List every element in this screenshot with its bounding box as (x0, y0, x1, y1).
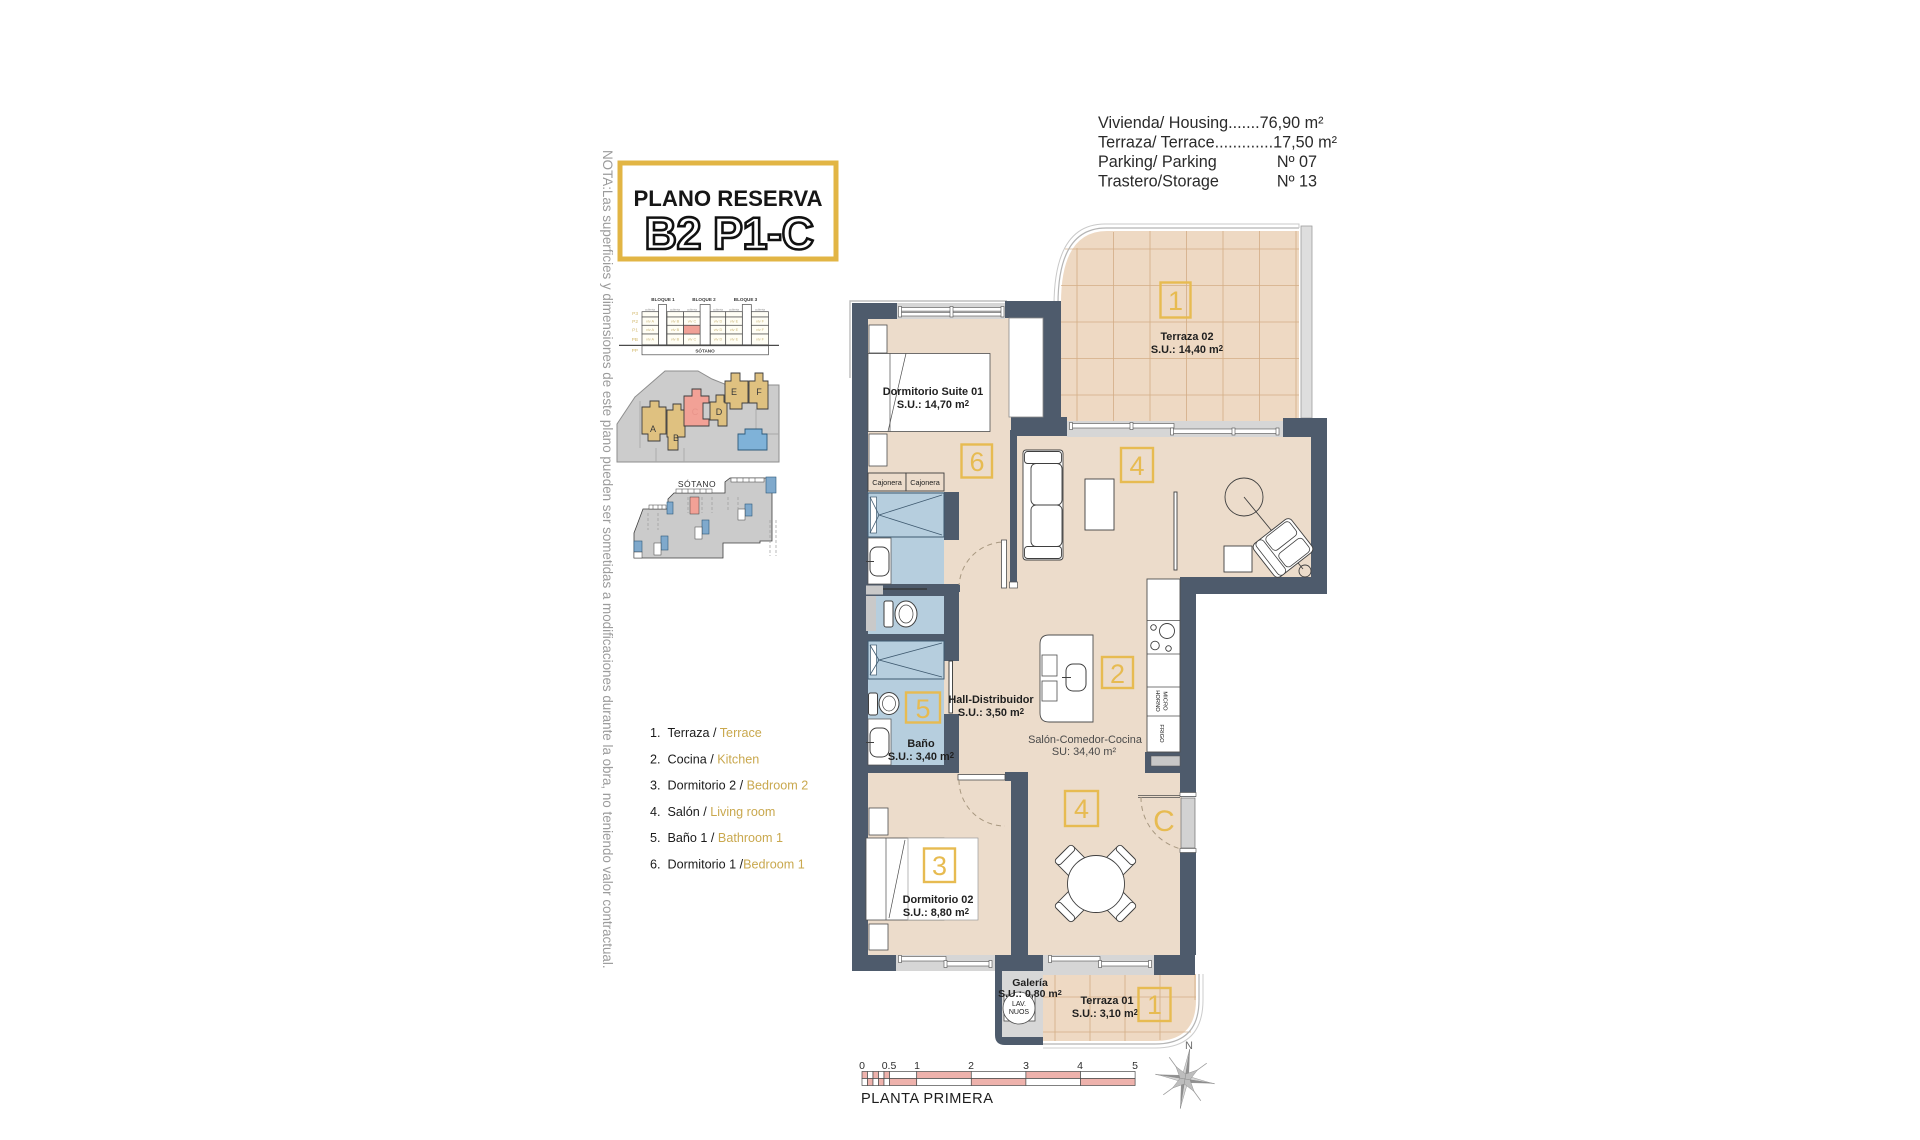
svg-text:S.U.: 8,80 m2: S.U.: 8,80 m2 (903, 907, 970, 919)
svg-text:P3: P3 (632, 311, 638, 317)
svg-text:HORNO: HORNO (1154, 690, 1160, 712)
svg-text:viv C: viv C (688, 320, 697, 324)
svg-text:Cajonera: Cajonera (910, 478, 941, 487)
svg-text:SÓTANO: SÓTANO (695, 346, 715, 353)
svg-text:cubierta: cubierta (645, 308, 655, 312)
svg-text:Dormitorio 02: Dormitorio 02 (903, 894, 974, 906)
svg-text:3: 3 (1023, 1060, 1029, 1072)
svg-text:BLOQUE 2: BLOQUE 2 (692, 297, 716, 302)
svg-text:MICRO: MICRO (1162, 691, 1168, 711)
svg-text:PLANTA PRIMERA: PLANTA PRIMERA (861, 1091, 993, 1107)
svg-text:B: B (673, 433, 679, 443)
svg-text:Terraza 02: Terraza 02 (1160, 331, 1213, 343)
svg-text:Trastero/Storage: Trastero/Storage (1098, 173, 1219, 191)
svg-text:Terraza 01: Terraza 01 (1080, 995, 1133, 1007)
svg-text:NUOS: NUOS (1009, 1009, 1030, 1016)
svg-text:P1: P1 (632, 328, 638, 334)
svg-text:1: 1 (1168, 286, 1183, 316)
svg-text:cubierta: cubierta (687, 308, 697, 312)
svg-text:cubierta: cubierta (713, 308, 723, 312)
svg-text:1: 1 (914, 1060, 920, 1072)
svg-text:Salón-Comedor-Cocina: Salón-Comedor-Cocina (1028, 734, 1143, 746)
svg-text:1. Terraza / Terrace: 1. Terraza / Terrace (650, 726, 762, 740)
svg-text:viv A: viv A (646, 328, 654, 332)
svg-text:Baño: Baño (907, 738, 935, 750)
svg-text:4: 4 (1077, 1060, 1083, 1072)
svg-text:0.5: 0.5 (882, 1060, 897, 1072)
svg-text:2. Cocina / Kitchen: 2. Cocina / Kitchen (650, 752, 759, 766)
svg-text:5: 5 (1132, 1060, 1138, 1072)
svg-text:cubierta: cubierta (670, 308, 680, 312)
svg-text:viv D: viv D (714, 328, 723, 332)
svg-text:D: D (716, 407, 723, 417)
svg-text:cubierta: cubierta (755, 308, 765, 312)
svg-text:0: 0 (859, 1060, 865, 1072)
svg-text:S.U.: 0,80 m2: S.U.: 0,80 m2 (998, 988, 1062, 1000)
svg-text:viv D: viv D (714, 338, 723, 342)
svg-text:6: 6 (969, 447, 984, 477)
svg-text:PB: PB (632, 337, 638, 343)
svg-text:3: 3 (932, 851, 947, 881)
svg-text:S.U.: 14,40 m2: S.U.: 14,40 m2 (1151, 344, 1224, 356)
svg-text:viv D: viv D (714, 320, 723, 324)
svg-text:viv F: viv F (756, 320, 765, 324)
svg-text:NOTA:Las superficies y dimensi: NOTA:Las superficies y dimensiones de es… (600, 150, 615, 969)
svg-text:6. Dormitorio 1 /Bedroom 1: 6. Dormitorio 1 /Bedroom 1 (650, 858, 805, 872)
svg-text:F: F (756, 387, 762, 397)
svg-text:Dormitorio Suite 01: Dormitorio Suite 01 (883, 386, 983, 398)
svg-text:S.U.: 14,70 m2: S.U.: 14,70 m2 (897, 399, 970, 411)
svg-text:1: 1 (1147, 990, 1162, 1020)
svg-text:5. Baño 1 / Bathroom 1: 5. Baño 1 / Bathroom 1 (650, 831, 783, 845)
svg-text:Vivienda/ Housing.......76,90: Vivienda/ Housing.......76,90 m² (1098, 114, 1324, 132)
svg-text:Terraza/ Terrace.............1: Terraza/ Terrace.............17,50 m² (1098, 134, 1338, 152)
svg-text:Nº 07: Nº 07 (1277, 153, 1317, 171)
svg-text:C: C (1153, 805, 1175, 838)
svg-text:Hall-Distribuidor: Hall-Distribuidor (948, 694, 1034, 706)
svg-text:2: 2 (1110, 659, 1125, 689)
svg-text:viv B: viv B (671, 328, 680, 332)
svg-text:4: 4 (1129, 451, 1144, 481)
svg-text:viv E: viv E (730, 320, 739, 324)
svg-text:4: 4 (1074, 794, 1089, 824)
svg-text:viv F: viv F (756, 328, 765, 332)
svg-text:LAV.: LAV. (1012, 1001, 1026, 1008)
svg-text:cubierta: cubierta (729, 308, 739, 312)
svg-text:3. Dormitorio 2 / Bedroom 2: 3. Dormitorio 2 / Bedroom 2 (650, 779, 808, 793)
svg-text:B2 P1-C: B2 P1-C (644, 208, 813, 259)
svg-text:4. Salón / Living room: 4. Salón / Living room (650, 805, 775, 819)
svg-text:viv B: viv B (671, 338, 680, 342)
svg-text:2: 2 (968, 1060, 974, 1072)
svg-text:viv B: viv B (671, 320, 680, 324)
svg-text:viv E: viv E (730, 338, 739, 342)
svg-text:A: A (650, 424, 656, 434)
svg-text:viv E: viv E (730, 328, 739, 332)
svg-text:viv A: viv A (646, 320, 654, 324)
svg-text:FRIGO: FRIGO (1158, 724, 1164, 743)
svg-text:viv A: viv A (646, 338, 654, 342)
svg-text:P2: P2 (632, 319, 638, 325)
svg-text:S.U.: 3,40 m2: S.U.: 3,40 m2 (888, 751, 955, 763)
svg-text:C: C (692, 407, 699, 417)
svg-text:5: 5 (915, 694, 930, 724)
svg-text:E: E (731, 387, 737, 397)
svg-text:BLOQUE 3: BLOQUE 3 (734, 297, 758, 302)
svg-text:S.U.: 3,50 m2: S.U.: 3,50 m2 (958, 707, 1025, 719)
svg-text:PP: PP (632, 348, 638, 354)
svg-text:viv C: viv C (688, 338, 697, 342)
svg-text:Nº 13: Nº 13 (1277, 173, 1317, 191)
svg-text:BLOQUE 1: BLOQUE 1 (651, 297, 675, 302)
svg-text:viv F: viv F (756, 338, 765, 342)
svg-text:S.U.: 3,10 m2: S.U.: 3,10 m2 (1072, 1008, 1139, 1020)
svg-text:Parking/ Parking: Parking/ Parking (1098, 153, 1217, 171)
svg-text:SU: 34,40 m²: SU: 34,40 m² (1052, 746, 1117, 758)
svg-text:Cajonera: Cajonera (872, 478, 903, 487)
svg-text:SÓTANO: SÓTANO (678, 479, 716, 489)
svg-text:N: N (1185, 1040, 1193, 1052)
